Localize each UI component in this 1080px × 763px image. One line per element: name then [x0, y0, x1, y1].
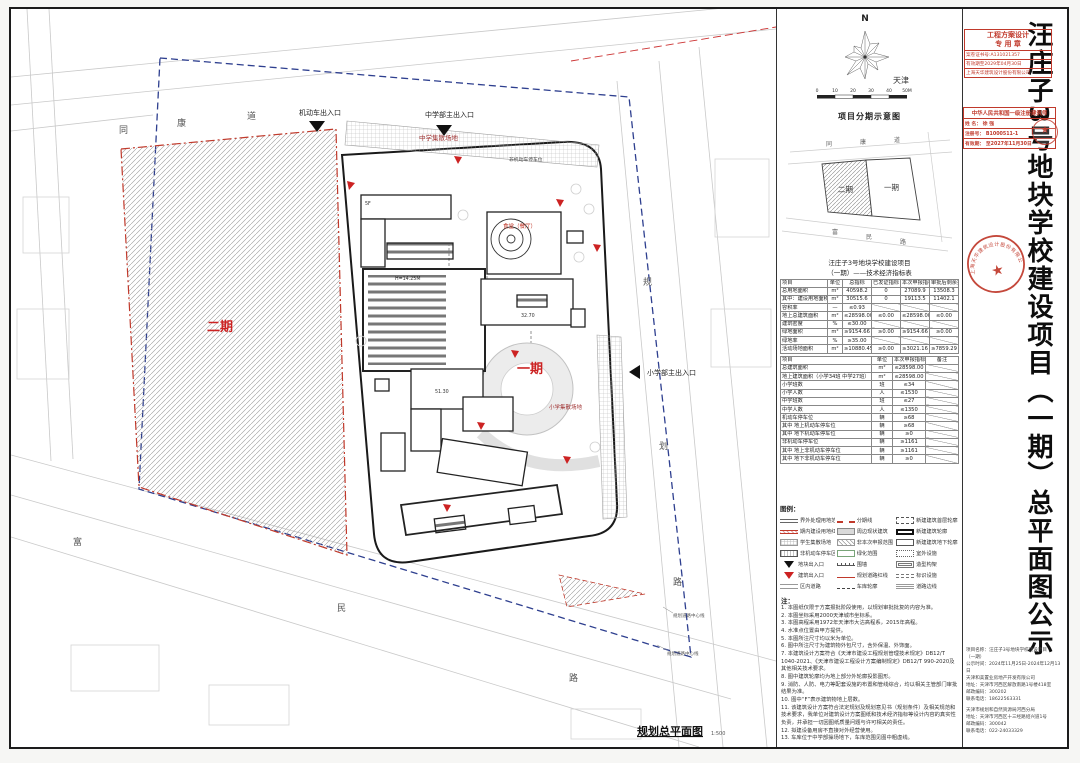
note-item: 9. 消防、人防、电力等配套设施的布置和管线综合，均以相关主管部门审批结果为准。 — [781, 682, 958, 697]
table-cell: ≤1350 — [893, 406, 926, 414]
design-seal-cert: 案卷证书号:A131021357 — [964, 51, 1052, 60]
table-cell: m² — [872, 364, 893, 372]
label-gather-primary: 小学集散场地 — [549, 403, 583, 411]
legend-item: 学生集散场地 — [780, 537, 835, 548]
minimap-road-bottom-char: 富 — [832, 228, 838, 236]
phasing-minimap: 二期 一期 同 康 道 富 民 路 — [780, 122, 960, 254]
legend-item-label: 室外设施 — [916, 550, 937, 557]
design-seal-stamp: 工程方案设计 专 用 章 案卷证书号:A131021357 有效期至2029年0… — [964, 29, 1052, 78]
label-phase1: 一期 — [517, 362, 543, 377]
applicant-info-block: 项目名称：汪庄子3号地块学校建设项目（一期）公示时间：2024年11月25日-2… — [966, 648, 1064, 703]
title-column: 汪庄子3号地块学校建设项目（一期）总平面图公示 工程方案设计 专 用 章 案卷证… — [963, 9, 1067, 747]
label-middle-entrance: 中学部主出入口 — [425, 110, 474, 119]
label-phase2: 二期 — [207, 320, 233, 335]
table-cell: 人 — [872, 389, 893, 397]
architect-seal-stamp: 中华人民共和国一级注册建筑师 姓 名： 徐 强 注册号： B1000511-1 … — [963, 107, 1056, 149]
table-cell: ≥0.00 — [872, 328, 901, 336]
table-cell: m² — [828, 295, 843, 303]
design-seal-company: 上海天华建筑设计股份有限公司 — [964, 69, 1052, 78]
minimap-road-bottom-char: 路 — [900, 238, 906, 246]
legend-item: 新建建筑首层轮廓 — [896, 515, 959, 526]
legend-item: 绿化范围 — [837, 548, 894, 559]
compass-svg: N 天津 0 10 20 30 40 — [777, 9, 961, 109]
table-cell: m² — [828, 345, 843, 353]
column-header: 单位 — [872, 356, 893, 364]
table-cell: 辆 — [872, 422, 893, 430]
footer-line: 地址：天津市河西区解放南路1号楼418室 — [966, 683, 1064, 690]
table-cell: ≥7859.29 — [930, 345, 959, 353]
table-cell: ≤34 — [893, 381, 926, 389]
s-reddash-legend-symbol-icon — [837, 521, 855, 523]
drawing-caption-scale: 1:500 — [711, 731, 725, 737]
table-cell — [872, 320, 901, 328]
table-cell: 班 — [872, 381, 893, 389]
label-dim2: 32.70 — [521, 313, 535, 319]
legend-item: 新建建筑地下轮廓 — [896, 537, 959, 548]
legend-item-label: 道路边线 — [916, 583, 937, 590]
legend-item-label: 标识设施 — [916, 572, 937, 579]
authority-info-block: 天津市规划和自然资源局河西分局地址：天津市河西区十三经路绍兴道1号邮政编码：30… — [966, 708, 1064, 736]
table-cell: ≥0.00 — [872, 345, 901, 353]
legend-grid: 界外处理用地范围分期线新建建筑首层轮廓期内建设用地红线周边现状建筑新建建筑轮廓学… — [780, 515, 959, 592]
table-cell: 中学人数 — [781, 406, 872, 414]
legend-item: 标识设施 — [896, 570, 959, 581]
legend-item-label: 学生集散场地 — [800, 539, 831, 546]
legend-item: 车库轮廓 — [837, 581, 894, 592]
column-header: 项目 — [781, 279, 828, 287]
table-cell: 其中 地下机动车停车位 — [781, 430, 872, 438]
footer-line: 邮政编码：300202 — [966, 690, 1064, 697]
table-cell — [926, 381, 959, 389]
table-cell: m² — [872, 373, 893, 381]
table-cell — [926, 430, 959, 438]
s-dbl-legend-symbol-icon — [780, 519, 798, 523]
notes-section: 注： 1. 本图纸仅限于方案报批阶段使用，以规划审批批复的内容为准。2. 本图坐… — [777, 593, 962, 747]
table-cell — [926, 406, 959, 414]
label-dim3: 51.30 — [435, 389, 449, 395]
table-cell: 绿地率 — [781, 337, 828, 345]
table-cell — [930, 337, 959, 345]
scale-tick: 0 — [816, 88, 819, 94]
legend-item: 新建建筑轮廓 — [896, 526, 959, 537]
s-dot-legend-symbol-icon — [896, 550, 914, 557]
table-cell — [872, 337, 901, 345]
table-cell: m² — [828, 328, 843, 336]
s-road-legend-symbol-icon — [780, 584, 798, 589]
table-row: 小学班数班≤34 — [781, 381, 959, 389]
table-cell: 辆 — [872, 414, 893, 422]
table-cell: ≤0.00 — [872, 312, 901, 320]
legend-item-label: 建筑出入口 — [798, 572, 824, 579]
table-header-row: 项目单位总指标已发证指标本次申报指标审批后剩余指标 — [781, 279, 959, 287]
table-cell — [926, 397, 959, 405]
table-cell: 其中 地下非机动车停车位 — [781, 455, 872, 463]
phasing-title: 项目分期示意图 — [777, 111, 962, 122]
legend-item: 期内建设用地红线 — [780, 526, 835, 537]
legend-item-label: 区内道路 — [800, 583, 821, 590]
table-cell — [926, 447, 959, 455]
city-label: 天津 — [893, 75, 909, 85]
notes-list: 1. 本图纸仅限于方案报批阶段使用，以规划审批批复的内容为准。2. 本图坐标采用… — [781, 605, 958, 743]
table-cell: 其中 地上非机动车停车位 — [781, 447, 872, 455]
table-cell: 40598.2 — [843, 287, 872, 295]
minimap-road-bottom-char: 民 — [866, 234, 872, 241]
s-cross-legend-symbol-icon — [780, 539, 798, 546]
table-row: 其中 地下非机动车停车位辆≥0 — [781, 455, 959, 463]
table-cell: ≥10880.45 — [843, 345, 872, 353]
table-cell: 11402.1 — [930, 295, 959, 303]
table-cell: ≥0 — [893, 430, 926, 438]
table-cell: 地上总建筑面积 — [781, 312, 828, 320]
table-row: 绿地面积m²≥9154.66≥0.00≥9154.66≥0.00 — [781, 328, 959, 336]
table-cell: ≥9154.66 — [901, 328, 930, 336]
legend-item-label: 期内建设用地红线 — [800, 528, 835, 535]
s-redsolid-legend-symbol-icon — [837, 577, 855, 578]
table-cell — [926, 364, 959, 372]
table-row: 活动场地面积m²≥10880.45≥0.00≥3021.16≥7859.29 — [781, 345, 959, 353]
table-row: 容积率—≤0.93 — [781, 304, 959, 312]
legend-item-label: 周边现状建筑 — [857, 528, 888, 535]
column-header: 已发证指标 — [872, 279, 901, 287]
legend-item-label: 地块出入口 — [798, 561, 824, 568]
scale-tick: 30 — [868, 88, 874, 94]
table-cell: 地上建筑面积（小学34班 中学27班） — [781, 373, 872, 381]
publicity-contact-info: 项目名称：汪庄子3号地块学校建设项目（一期）公示时间：2024年11月25日-2… — [966, 648, 1064, 741]
table-cell — [926, 389, 959, 397]
table-cell: ≥3021.16 — [901, 345, 930, 353]
site-plan-area: 机动车出入口 中学部主出入口 小学部主出入口 中学集散场地 小学集散场地 食堂（… — [11, 9, 777, 747]
table-cell: 建筑密度 — [781, 320, 828, 328]
table-cell: 19113.5 — [901, 295, 930, 303]
label-primary-entrance: 小学部主出入口 — [647, 368, 696, 377]
label-bike-parking: 非机动车停车位 — [509, 156, 543, 163]
legend-item: 非本次申报范围 — [837, 537, 894, 548]
legend-item-label: 新建建筑轮廓 — [916, 528, 947, 535]
minimap-road-top-char: 同 — [826, 141, 832, 148]
table-cell: 容积率 — [781, 304, 828, 312]
column-header: 本次申报指标 — [901, 279, 930, 287]
legend-item-label: 非机动车停车区 — [800, 550, 835, 557]
minimap-road-top-char: 康 — [860, 138, 866, 146]
design-seal-validity: 有效期至2029年04月30日 — [964, 60, 1052, 69]
road-bottom-char3: 路 — [569, 672, 578, 684]
site-plan-svg: 机动车出入口 中学部主出入口 小学部主出入口 中学集散场地 小学集散场地 食堂（… — [11, 9, 776, 747]
design-seal-title2: 专 用 章 — [965, 40, 1051, 49]
north-label: N — [861, 14, 869, 24]
scale-tick: 40 — [886, 88, 892, 94]
round-seal-star-icon: ★ — [990, 262, 1006, 281]
table-cell: 辆 — [872, 438, 893, 446]
legend-item: 建筑出入口 — [780, 570, 835, 581]
s-wall-legend-symbol-icon — [837, 563, 855, 566]
table-cell — [926, 455, 959, 463]
s-eq-legend-symbol-icon — [896, 574, 914, 578]
table-title-line1: 汪庄子3号地块学校建设项目 — [780, 259, 959, 269]
table-row: 非机动车停车位辆≥1161 — [781, 438, 959, 446]
table-cell: 绿地面积 — [781, 328, 828, 336]
table-cell: % — [828, 337, 843, 345]
legend-item-label: 新建建筑地下轮廓 — [916, 539, 958, 546]
legend-item: 界外处理用地范围 — [780, 515, 835, 526]
table-row: 其中：建设用地面积m²30515.6019113.511402.1 — [781, 295, 959, 303]
table-row: 其中 地下机动车停车位辆≥0 — [781, 430, 959, 438]
table-cell: % — [828, 320, 843, 328]
s-tri3-legend-symbol-icon — [896, 584, 914, 589]
scale-tick: 20 — [850, 88, 856, 94]
table-cell: ≥68 — [893, 422, 926, 430]
label-leader2: 规划道路中心线 — [667, 650, 699, 657]
footer-line: 联系电话：022-24033329 — [966, 729, 1064, 736]
table-row: 中学班数班≤27 — [781, 397, 959, 405]
table-row: 绿地率%≥35.00 — [781, 337, 959, 345]
table-row: 地上总建筑面积m²≤28598.00≤0.00≤28598.00≤0.00 — [781, 312, 959, 320]
s-rtri-legend-symbol-icon — [784, 572, 794, 579]
note-item: 13. 车库位于中学部操场地下，车库范围见图中粗虚线。 — [781, 735, 958, 743]
legend-item: 道路边线 — [896, 581, 959, 592]
table-cell: 活动场地面积 — [781, 345, 828, 353]
table-cell: 0 — [872, 295, 901, 303]
table-cell: — — [828, 304, 843, 312]
road-right-char2: 划 — [659, 440, 668, 452]
legend-section: 图例： 界外处理用地范围分期线新建建筑首层轮廓期内建设用地红线周边现状建筑新建建… — [777, 495, 962, 593]
footer-line: 联系电话：18622563331 — [966, 697, 1064, 704]
minimap-phase1-label: 一期 — [884, 183, 899, 192]
table-row: 地上建筑面积（小学34班 中学27班）m²≤28598.00 — [781, 373, 959, 381]
label-canteen: 食堂（餐厅） — [503, 222, 536, 230]
label-dim1: H=14.25M — [395, 276, 421, 282]
table-cell: m² — [828, 287, 843, 295]
architect-seal-header: 中华人民共和国一级注册建筑师 — [963, 107, 1056, 119]
table-cell: 辆 — [872, 455, 893, 463]
column-header: 本次申报指标 — [893, 356, 926, 364]
table-row: 总建筑面积m²≤28598.00 — [781, 364, 959, 372]
road-top-char3: 道 — [247, 110, 256, 122]
note-item: 11. 该建筑设计方案符合法定规划及规划意见书（规划条件）及相关规范和技术要求，… — [781, 705, 958, 728]
note-item: 1. 本图纸仅限于方案报批阶段使用，以规划审批批复的内容为准。 — [781, 605, 958, 613]
table-cell — [901, 304, 930, 312]
legend-item-label: 绿化范围 — [857, 550, 878, 557]
column-header: 总指标 — [843, 279, 872, 287]
table-cell — [926, 438, 959, 446]
architect-mini-seal-icon: ★ — [1032, 119, 1058, 145]
table-cell: 班 — [872, 397, 893, 405]
table-cell: ≤0.00 — [930, 312, 959, 320]
table-cell — [926, 422, 959, 430]
table-cell: 其中 地上机动车停车位 — [781, 422, 872, 430]
note-item: 7. 本建筑设计方案符合《天津市建设工程规划管理技术规定》DB12/T 1040… — [781, 651, 958, 674]
table-cell: 0 — [872, 287, 901, 295]
legend-item: 周边现状建筑 — [837, 526, 894, 537]
table-title-line2: （一期）——技术经济指标表 — [780, 269, 959, 279]
table-cell — [930, 320, 959, 328]
legend-item-label: 车库轮廓 — [857, 583, 878, 590]
column-header: 备注 — [926, 356, 959, 364]
road-right-char3: 路 — [673, 576, 682, 588]
phasing-section: 项目分期示意图 二期 一期 同 康 道 富 — [777, 109, 962, 259]
table-cell: 13508.3 — [930, 287, 959, 295]
column-header: 单位 — [828, 279, 843, 287]
table-cell — [926, 373, 959, 381]
legend-item-label: 非本次申报范围 — [857, 539, 893, 546]
scale-tick: 10 — [832, 88, 838, 94]
legend-item: 分期线 — [837, 515, 894, 526]
table-cell: 30515.6 — [843, 295, 872, 303]
table-cell: 总建筑面积 — [781, 364, 872, 372]
minimap-phase2-label: 二期 — [838, 185, 853, 194]
leader-lines — [657, 607, 673, 650]
label-dim4: 5F — [365, 201, 371, 207]
table-cell: ≥35.00 — [843, 337, 872, 345]
road-bottom-char2: 民 — [337, 603, 346, 614]
south-hatch-wedge — [559, 575, 645, 607]
s-cdash-legend-symbol-icon — [837, 588, 855, 589]
indicator-table-main: 项目单位总指标已发证指标本次申报指标审批后剩余指标总用地面积m²40598.20… — [780, 279, 959, 354]
table-cell — [926, 414, 959, 422]
table-cell: 小学人数 — [781, 389, 872, 397]
note-item: 8. 图中建筑轮廓均为地上部分外轮廓投影图形。 — [781, 674, 958, 682]
table-cell: 总用地面积 — [781, 287, 828, 295]
table-row: 机动车停车位辆≥68 — [781, 414, 959, 422]
table-header-row: 项目单位本次申报指标备注 — [781, 356, 959, 364]
table-cell: 中学班数 — [781, 397, 872, 405]
rose-center — [864, 56, 867, 59]
legend-item: 非机动车停车区 — [780, 548, 835, 559]
legend-item: 区内道路 — [780, 581, 835, 592]
table-cell — [872, 304, 901, 312]
road-top-char2: 康 — [177, 117, 186, 129]
table-cell: 27089.9 — [901, 287, 930, 295]
scale-bar: 0 10 20 30 40 50M — [816, 88, 912, 99]
scale-tick: 50M — [902, 88, 912, 94]
drawing-sheet: 机动车出入口 中学部主出入口 小学部主出入口 中学集散场地 小学集散场地 食堂（… — [9, 7, 1069, 749]
table-cell: ≥0.00 — [930, 328, 959, 336]
s-thin-legend-symbol-icon — [896, 539, 914, 546]
indicator-table-detail: 项目单位本次申报指标备注总建筑面积m²≤28598.00地上建筑面积（小学34班… — [780, 356, 959, 464]
legend-item: 地块出入口 — [780, 559, 835, 570]
s-dblbox-legend-symbol-icon — [896, 561, 914, 568]
indicator-tables: 汪庄子3号地块学校建设项目 （一期）——技术经济指标表 项目单位总指标已发证指标… — [777, 259, 962, 495]
table-cell: 其中：建设用地面积 — [781, 295, 828, 303]
table-cell: ≥0 — [893, 455, 926, 463]
legend-item: 造型构架 — [896, 559, 959, 570]
road-right-char1: 规 — [643, 277, 652, 288]
s-green-legend-symbol-icon — [837, 550, 855, 557]
table-row: 建筑密度%≤30.00 — [781, 320, 959, 328]
legend-item: 室外设施 — [896, 548, 959, 559]
notes-title: 注： — [781, 595, 958, 605]
legend-item-label: 新建建筑首层轮廓 — [916, 517, 958, 524]
table-cell: ≤28598.00 — [893, 364, 926, 372]
road-top-char1: 同 — [119, 125, 128, 136]
table-cell: 非机动车停车位 — [781, 438, 872, 446]
table-cell: ≤28598.00 — [901, 312, 930, 320]
table-cell: 人 — [872, 406, 893, 414]
label-motor-entrance: 机动车出入口 — [299, 108, 341, 117]
table-cell — [930, 304, 959, 312]
compass-section: N 天津 0 10 20 30 40 — [777, 9, 962, 109]
wind-rose — [845, 31, 889, 79]
s-bold-legend-symbol-icon — [896, 529, 914, 535]
table-cell: 小学班数 — [781, 381, 872, 389]
s-diag-legend-symbol-icon — [837, 539, 855, 546]
table-cell: ≤1530 — [893, 389, 926, 397]
s-park-legend-symbol-icon — [780, 550, 798, 557]
table-cell: ≤0.93 — [843, 304, 872, 312]
table-cell — [901, 337, 930, 345]
info-column: N 天津 0 10 20 30 40 — [777, 9, 963, 747]
table-cell: m² — [828, 312, 843, 320]
s-btri-legend-symbol-icon — [784, 561, 794, 568]
legend-title: 图例： — [780, 505, 800, 513]
table-row: 其中 地上机动车停车位辆≥68 — [781, 422, 959, 430]
minimap-road-top-char: 道 — [894, 136, 900, 144]
table-cell: ≤27 — [893, 397, 926, 405]
table-cell: ≤30.00 — [843, 320, 872, 328]
design-seal-title1: 工程方案设计 — [965, 31, 1051, 40]
table-row: 小学人数人≤1530 — [781, 389, 959, 397]
table-row: 总用地面积m²40598.2027089.913508.3 — [781, 287, 959, 295]
legend-item-label: 分期线 — [857, 517, 873, 524]
s-dashbox-legend-symbol-icon — [896, 517, 914, 524]
legend-item-label: 界外处理用地范围 — [800, 517, 835, 524]
table-cell: 辆 — [872, 430, 893, 438]
legend-item: 规划道路红线 — [837, 570, 894, 581]
note-item: 6. 图中所注尺寸为建筑物外包尺寸，含外保温、外饰面。 — [781, 643, 958, 651]
footer-line: 公示时间：2024年11月25日-2024年12月13日 — [966, 662, 1064, 676]
s-redline2-legend-symbol-icon — [780, 530, 798, 534]
note-item: 10. 图中“F”表示建筑物地上层数。 — [781, 697, 958, 705]
label-leader1: 规划道路中心线 — [673, 612, 705, 619]
table-cell: 辆 — [872, 447, 893, 455]
drawing-caption: 规划总平面图 — [637, 724, 703, 738]
note-item: 3. 本图高程采用1972年天津市大沽高程系，2015年高程。 — [781, 620, 958, 628]
footer-line: 天津和美置业房地产开发有限公司 — [966, 676, 1064, 683]
legend-item-label: 规划道路红线 — [857, 572, 888, 579]
table-row: 其中 地上非机动车停车位辆≥1161 — [781, 447, 959, 455]
table-cell: ≥1161 — [893, 438, 926, 446]
legend-item-label: 造型构架 — [916, 561, 937, 568]
table-cell: ≤28598.00 — [843, 312, 872, 320]
note-item: 4. 水准点位置由甲方提供。 — [781, 628, 958, 636]
legend-item-label: 围墙 — [857, 561, 867, 568]
table-cell: ≥9154.66 — [843, 328, 872, 336]
legend-item: 围墙 — [837, 559, 894, 570]
column-header: 审批后剩余指标 — [930, 279, 959, 287]
table-cell: ≥1161 — [893, 447, 926, 455]
table-cell: ≥68 — [893, 414, 926, 422]
phase2-parcel — [121, 129, 347, 555]
table-row: 中学人数人≤1350 — [781, 406, 959, 414]
road-bottom-char1: 富 — [73, 536, 82, 548]
s-gray-legend-symbol-icon — [837, 528, 855, 535]
table-cell — [901, 320, 930, 328]
table-cell: ≤28598.00 — [893, 373, 926, 381]
label-gather-middle: 中学集散场地 — [419, 133, 459, 142]
table-cell: 机动车停车位 — [781, 414, 872, 422]
column-header: 项目 — [781, 356, 872, 364]
